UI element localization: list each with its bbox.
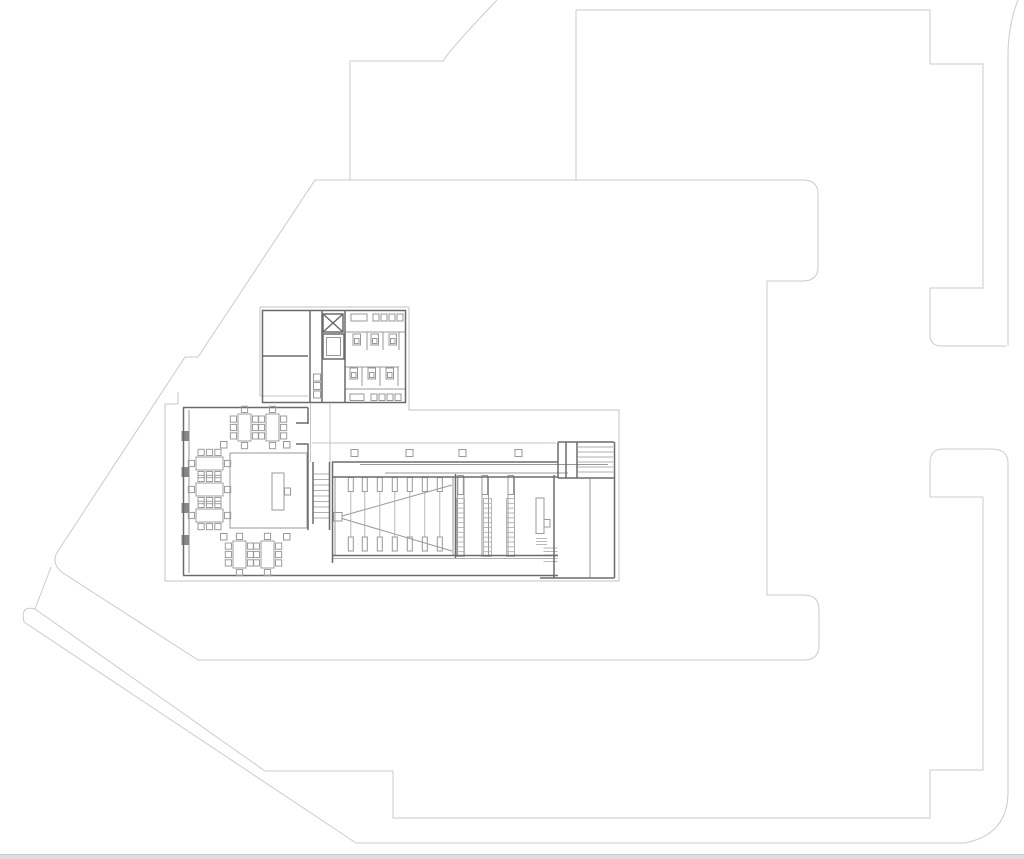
page xyxy=(0,0,1024,859)
table-with-chairs xyxy=(258,406,286,448)
layer-site-boundary xyxy=(23,0,1018,843)
table-with-chairs xyxy=(188,449,230,477)
horizontal-scrollbar-track[interactable] xyxy=(0,854,1024,859)
floor-plan-drawing xyxy=(0,0,1024,854)
table-with-chairs xyxy=(230,406,258,448)
table-with-chairs xyxy=(188,501,230,529)
table-with-chairs xyxy=(188,475,230,503)
table-with-chairs xyxy=(253,533,281,575)
table-with-chairs xyxy=(225,533,253,575)
